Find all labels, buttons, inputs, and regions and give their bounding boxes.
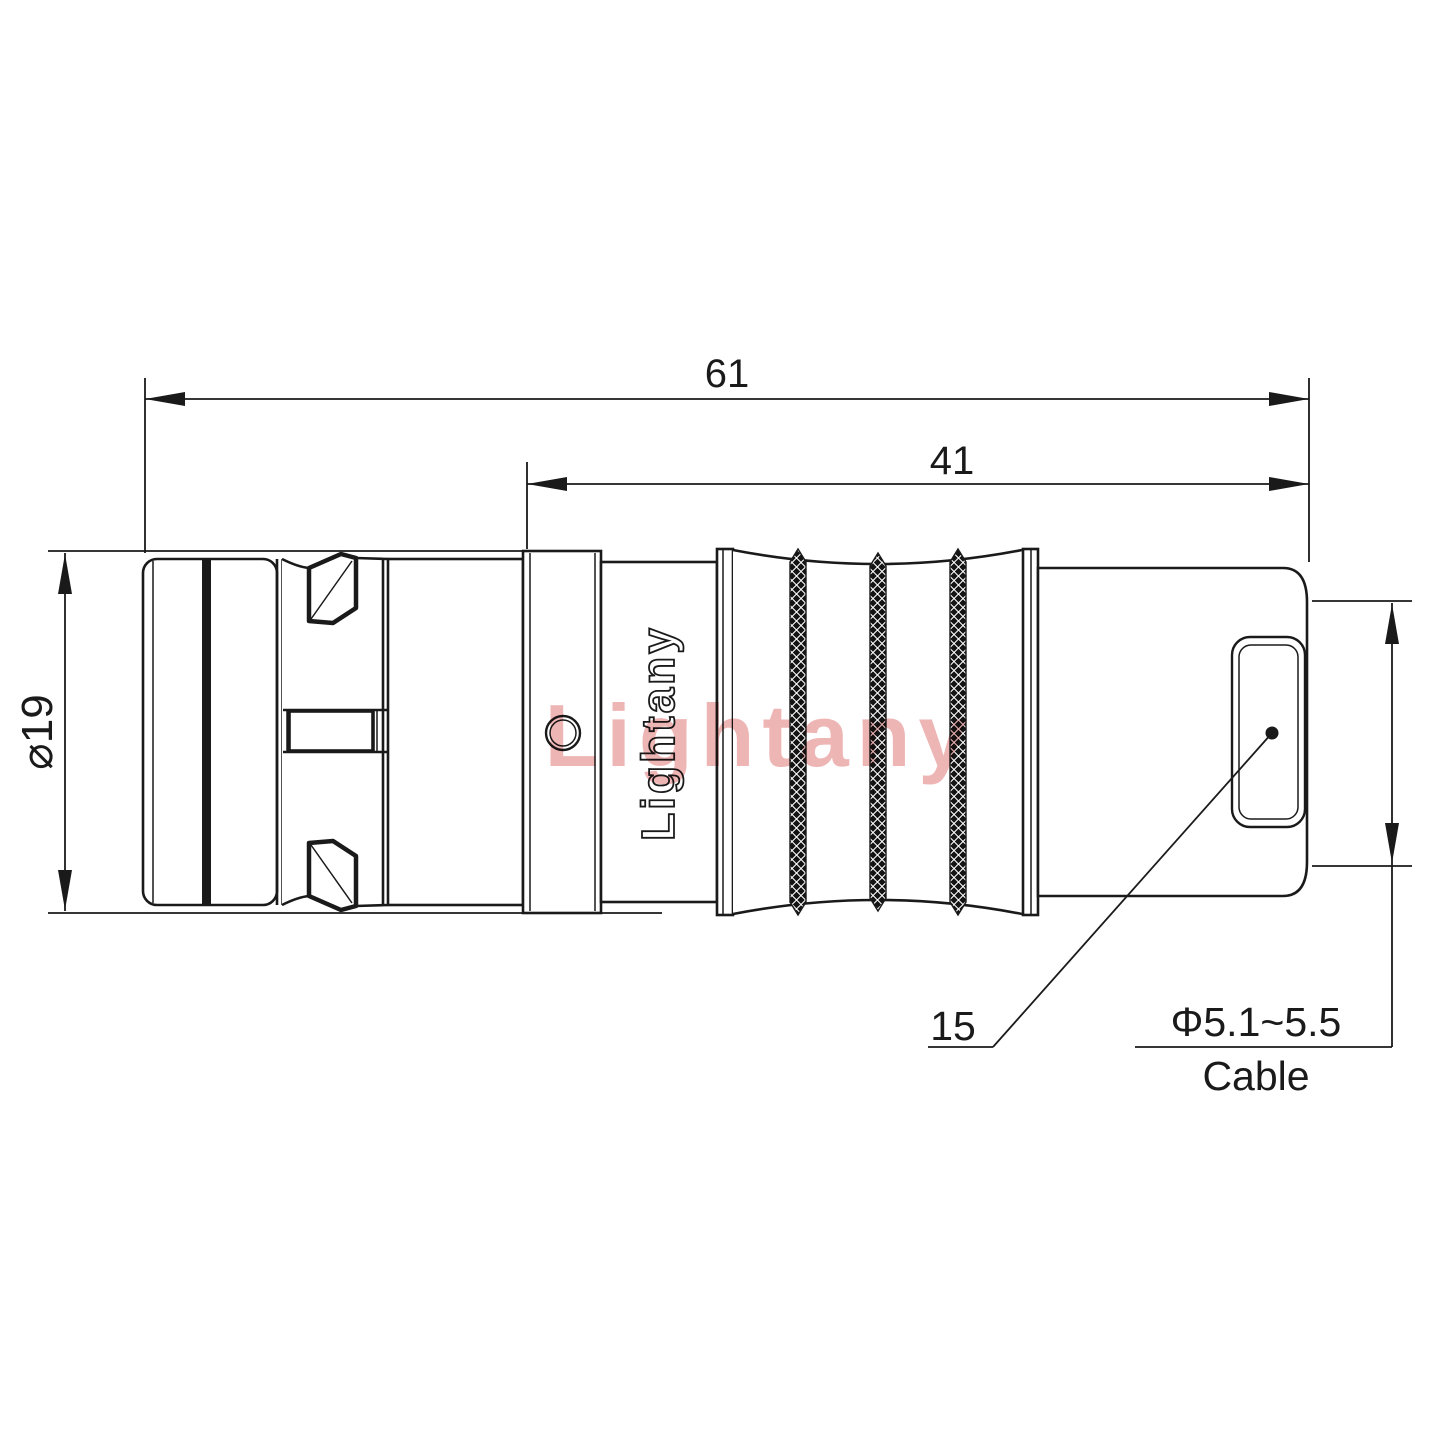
dimension-overall-length: 61 xyxy=(145,352,1309,562)
watermark-text: Lightany xyxy=(545,686,976,785)
coupling-nut xyxy=(143,559,282,905)
bayonet-tab-top xyxy=(309,554,356,623)
boot-length-label: 15 xyxy=(930,1003,976,1049)
bayonet-tab-bottom xyxy=(309,841,356,910)
dimension-front-length: 41 xyxy=(527,439,1309,549)
overall-length-label: 61 xyxy=(705,352,750,396)
seal-ring xyxy=(202,560,211,904)
cable-range-label: Φ5.1~5.5 xyxy=(1171,999,1342,1045)
cable-caption-label: Cable xyxy=(1202,1053,1309,1099)
bayonet-section xyxy=(282,554,388,910)
bayonet-slot xyxy=(283,710,387,752)
outer-diameter-label: ⌀19 xyxy=(13,694,62,769)
cable-boot xyxy=(1038,568,1307,896)
technical-drawing: Lightany Lightany xyxy=(0,0,1440,1440)
barrel xyxy=(388,559,523,905)
front-length-label: 41 xyxy=(930,439,975,483)
drawing-canvas: Lightany Lightany xyxy=(0,0,1440,1440)
